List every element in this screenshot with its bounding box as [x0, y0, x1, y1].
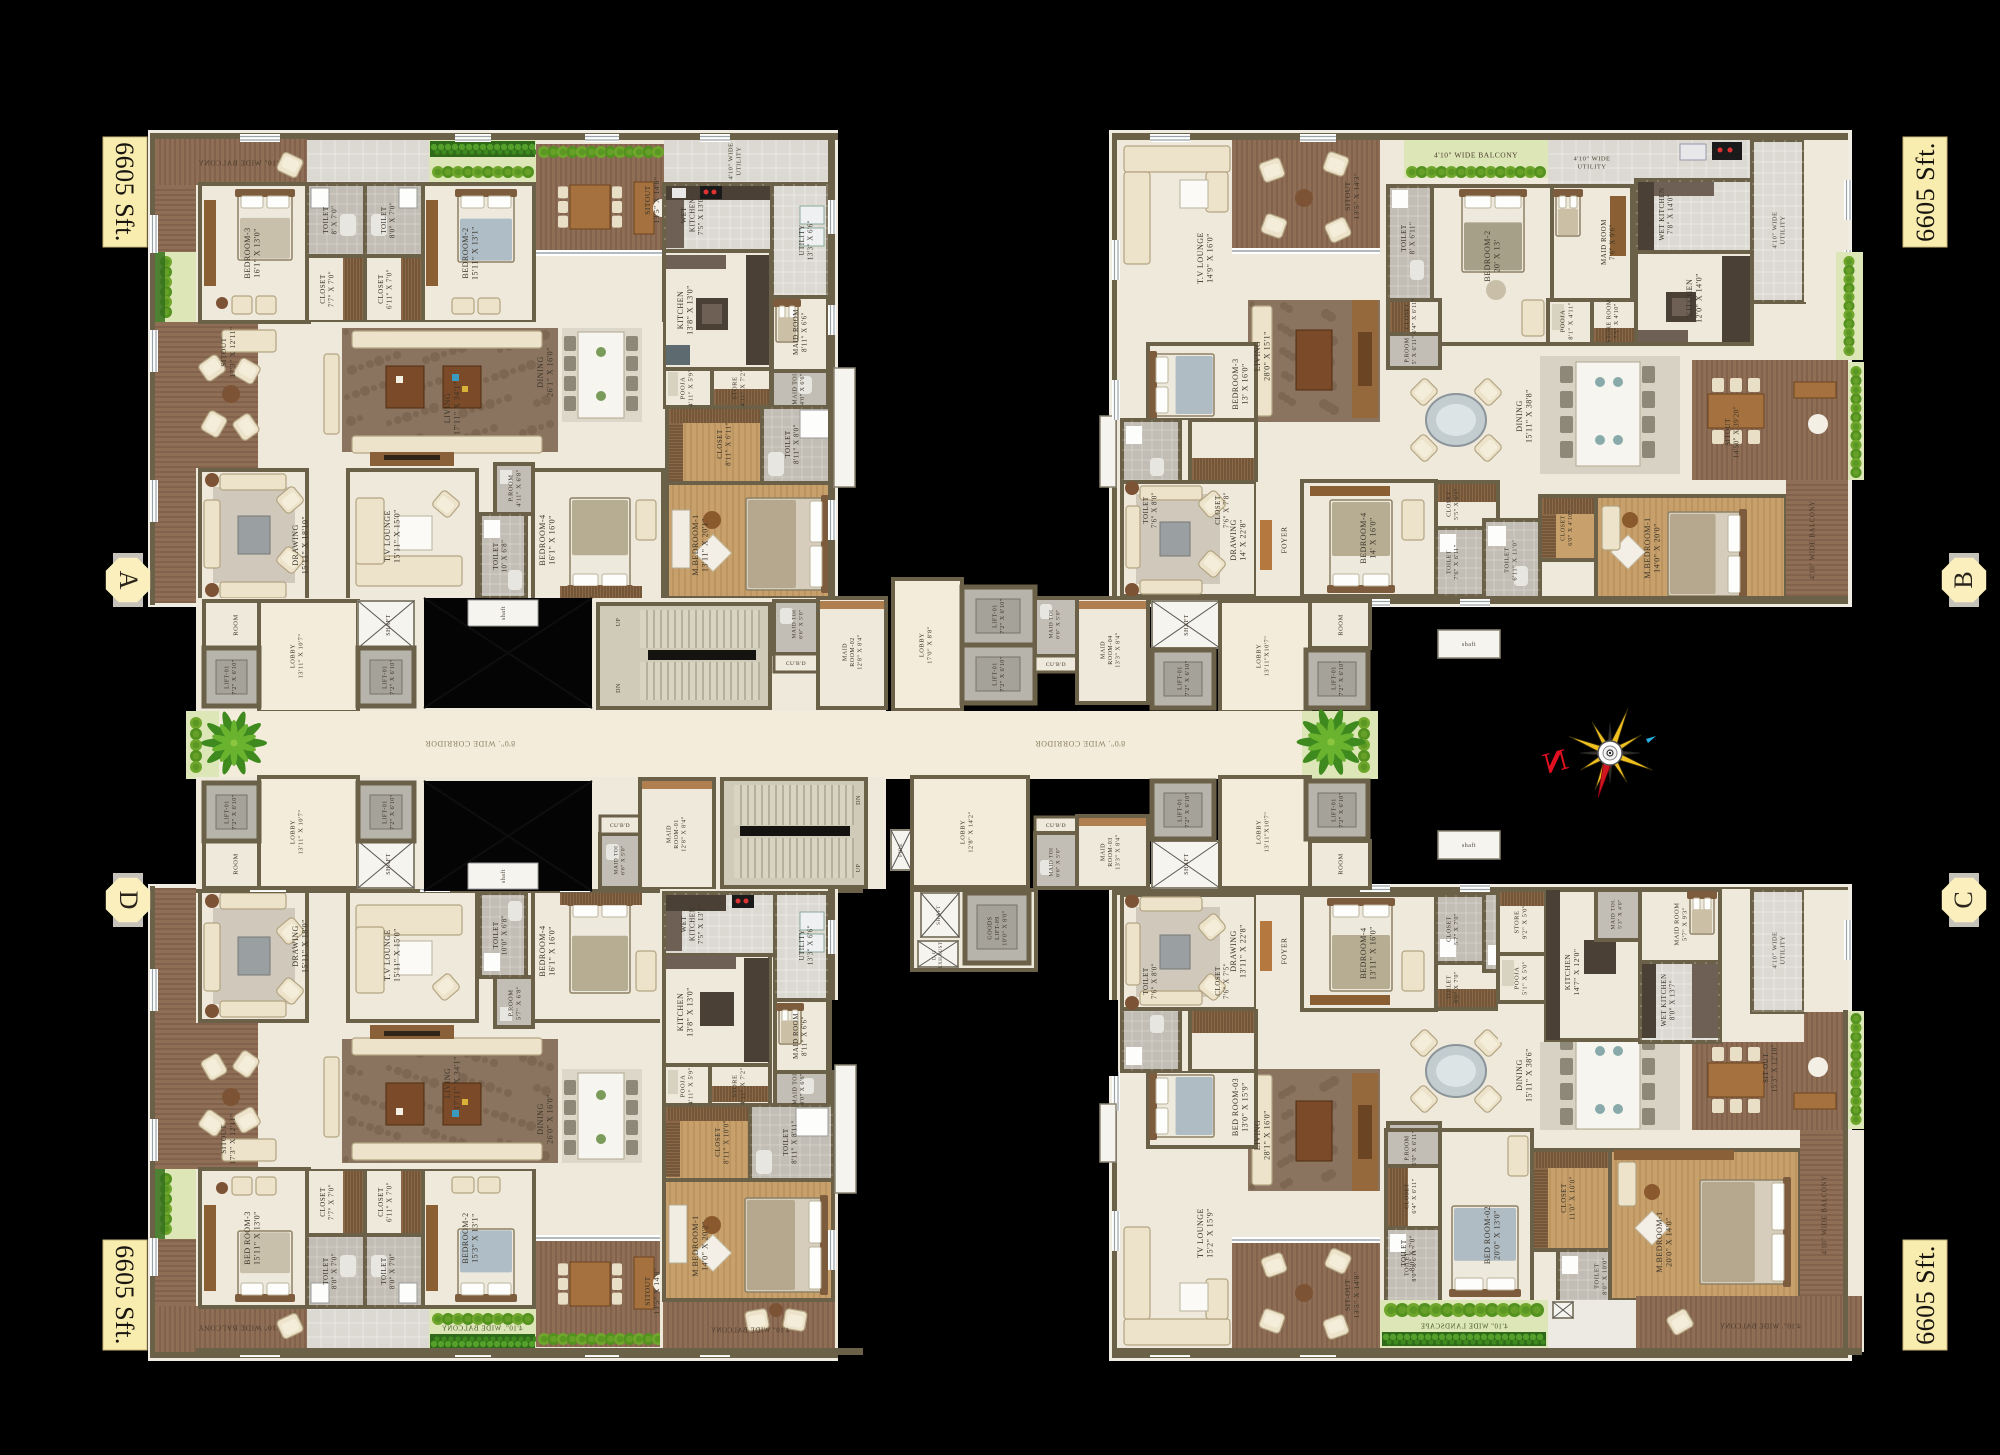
svg-text:7'2" X 6'10": 7'2" X 6'10": [232, 659, 238, 694]
svg-text:CLOSET: CLOSET: [377, 1187, 385, 1217]
svg-text:LOBBY: LOBBY: [289, 644, 296, 669]
svg-text:4'0" X 6'6": 4'0" X 6'6": [800, 1073, 806, 1105]
svg-text:CLOSET: CLOSET: [1446, 491, 1452, 517]
svg-text:LIFT-01: LIFT-01: [992, 604, 998, 628]
svg-text:TOILET: TOILET: [322, 1257, 330, 1285]
svg-text:DINING: DINING: [536, 1103, 545, 1134]
svg-text:TOILET: TOILET: [1142, 967, 1150, 995]
svg-text:MAID TOI: MAID TOI: [791, 609, 797, 638]
svg-text:8'0" X 10'0": 8'0" X 10'0": [1601, 1257, 1608, 1295]
svg-text:8' X 6'11": 8' X 6'11": [1409, 222, 1417, 255]
svg-text:STORE: STORE: [731, 377, 738, 400]
svg-text:4'0" X 6'6": 4'0" X 6'6": [800, 373, 806, 405]
svg-text:SITOUT: SITOUT: [1724, 418, 1732, 446]
svg-text:8'0" X 7'0": 8'0" X 7'0": [1454, 971, 1460, 1003]
svg-text:EXHAUST: EXHAUST: [939, 942, 944, 969]
svg-text:15'2" X 15'9": 15'2" X 15'9": [1206, 1208, 1215, 1258]
svg-text:UTILITY: UTILITY: [735, 146, 742, 175]
svg-text:8'11" X 6'6": 8'11" X 6'6": [801, 1016, 809, 1056]
svg-text:LIVING: LIVING: [1253, 341, 1262, 372]
svg-text:STORE: STORE: [731, 1075, 738, 1098]
svg-text:CLOSET: CLOSET: [319, 1187, 327, 1217]
svg-text:ROOM-02: ROOM-02: [850, 637, 856, 667]
svg-text:4'10" WIDE LANDSCAPE: 4'10" WIDE LANDSCAPE: [1420, 1322, 1508, 1330]
svg-text:7'2" X 6'10": 7'2" X 6'10": [232, 794, 238, 829]
svg-text:MAID ROOM: MAID ROOM: [1673, 903, 1680, 946]
svg-text:17'3" X 12'11": 17'3" X 12'11": [228, 327, 237, 378]
svg-text:9'2" X 5'0": 9'2" X 5'0": [1521, 905, 1528, 939]
svg-text:SITOUT: SITOUT: [1343, 181, 1352, 211]
svg-text:17'0" X 8'8": 17'0" X 8'8": [926, 626, 933, 664]
svg-text:LOBBY: LOBBY: [1255, 820, 1262, 845]
svg-text:M.BEDROOM-1: M.BEDROOM-1: [691, 514, 700, 575]
svg-text:LIFT-09: LIFT-09: [995, 916, 1001, 940]
svg-text:4'10". WIDE BALCONY: 4'10". WIDE BALCONY: [441, 1324, 522, 1332]
svg-text:LIFT-01: LIFT-01: [1177, 798, 1183, 822]
svg-text:CU'B'D: CU'B'D: [1046, 662, 1066, 668]
svg-text:ROOM: ROOM: [232, 614, 239, 636]
svg-text:13'3" X 8'4": 13'3" X 8'4": [1116, 834, 1122, 869]
svg-text:8'0" X 7'0": 8'0" X 7'0": [331, 1253, 339, 1289]
svg-text:UP: UP: [616, 618, 622, 627]
svg-text:BEDROOM-3: BEDROOM-3: [243, 227, 252, 278]
svg-text:MAID ROOM: MAID ROOM: [792, 309, 800, 355]
svg-text:6605 Sft.: 6605 Sft.: [110, 142, 139, 242]
svg-text:5'7" X 6'8": 5'7" X 6'8": [515, 986, 522, 1020]
svg-text:MAID TOI: MAID TOI: [792, 1073, 798, 1104]
svg-text:10'0" X 6'8": 10'0" X 6'8": [501, 915, 509, 955]
svg-text:7'5" X 13'0": 7'5" X 13'0": [697, 195, 705, 235]
svg-text:ROOM: ROOM: [1337, 614, 1344, 636]
svg-text:LOBBY: LOBBY: [289, 820, 296, 845]
svg-text:6'11" X 11'0": 6'11" X 11'0": [1511, 539, 1518, 580]
svg-text:A: A: [114, 571, 143, 590]
svg-text:CLOSET: CLOSET: [1214, 966, 1222, 996]
svg-text:shaft: shaft: [500, 606, 507, 620]
svg-text:8'0" X 7'0": 8'0" X 7'0": [389, 202, 397, 238]
svg-text:MAID TOI: MAID TOI: [1048, 847, 1054, 876]
svg-text:UTILITY: UTILITY: [1577, 163, 1606, 170]
svg-text:TOILET: TOILET: [492, 542, 500, 570]
svg-text:4'11" X 6'8": 4'11" X 6'8": [515, 469, 522, 507]
svg-text:4'11" X 5'9": 4'11" X 5'9": [687, 1067, 694, 1105]
svg-text:4'10" WIDE BALCONY: 4'10" WIDE BALCONY: [1820, 1175, 1828, 1254]
svg-text:STORE: STORE: [1513, 911, 1520, 934]
svg-text:7'2" X 6'10": 7'2" X 6'10": [1000, 598, 1006, 633]
svg-text:6'0" X 4'10": 6'0" X 4'10": [1568, 510, 1574, 545]
svg-text:15'11" X 15'0": 15'11" X 15'0": [393, 509, 402, 563]
svg-text:13'11" X 22'8": 13'11" X 22'8": [1239, 924, 1248, 978]
svg-text:7'2" X 6'10": 7'2" X 6'10": [1185, 792, 1191, 827]
svg-text:DRAWING: DRAWING: [1229, 519, 1238, 561]
svg-text:MAID TOI: MAID TOI: [792, 373, 798, 404]
svg-text:15'11" X 18'10": 15'11" X 18'10": [301, 516, 310, 574]
svg-text:LIVING: LIVING: [1253, 1120, 1262, 1151]
svg-text:6'6" X 5'0": 6'6" X 5'0": [1055, 609, 1061, 639]
svg-text:4'10". WIDE BALCONY: 4'10". WIDE BALCONY: [1719, 1322, 1800, 1330]
svg-text:LIFT-01: LIFT-01: [1331, 666, 1337, 690]
svg-text:8'0" X 6'11": 8'0" X 6'11": [1412, 1246, 1418, 1281]
svg-text:5'3" X 4'0": 5'3" X 4'0": [1617, 899, 1623, 929]
svg-text:TOILET: TOILET: [1142, 496, 1150, 524]
svg-text:8'0". WIDE CORRIDOR: 8'0". WIDE CORRIDOR: [1035, 739, 1125, 748]
svg-text:BED ROOM-03: BED ROOM-03: [1231, 1078, 1240, 1136]
svg-text:BEDROOM-2: BEDROOM-2: [461, 227, 470, 278]
svg-text:LIVING: LIVING: [443, 393, 452, 424]
svg-text:UTILITY: UTILITY: [798, 929, 806, 960]
svg-text:8'0" X 13'7": 8'0" X 13'7": [1669, 980, 1677, 1020]
svg-text:LIFT-01: LIFT-01: [382, 800, 388, 824]
svg-text:BED ROOM-3: BED ROOM-3: [243, 1211, 252, 1265]
svg-text:D.G: D.G: [933, 950, 938, 960]
svg-text:20'0" X 14'0": 20'0" X 14'0": [1665, 1217, 1674, 1267]
svg-text:ROOM: ROOM: [1337, 853, 1344, 875]
svg-text:DRAWING: DRAWING: [1229, 930, 1238, 972]
svg-text:TOILET: TOILET: [1446, 975, 1452, 999]
svg-text:13'11"X10'7": 13'11"X10'7": [1263, 812, 1270, 853]
svg-text:MAID ROOM: MAID ROOM: [1600, 219, 1608, 265]
svg-text:SHAFT: SHAFT: [1184, 853, 1190, 875]
svg-text:4'10" WIDE BALCONY: 4'10" WIDE BALCONY: [1434, 151, 1518, 160]
svg-text:13'3" X 6'6": 13'3" X 6'6": [807, 925, 815, 965]
svg-text:26'0" X 16'0": 26'0" X 16'0": [546, 1094, 555, 1144]
svg-text:MAID TOI.: MAID TOI.: [1610, 898, 1616, 929]
svg-text:8'1" X 4'11": 8'1" X 4'11": [1567, 302, 1574, 340]
svg-text:28'0" X 15'1": 28'0" X 15'1": [1263, 331, 1272, 381]
svg-text:13'0" X 15'9": 13'0" X 15'9": [1241, 1082, 1250, 1132]
svg-text:8'0". WIDE CORRIDOR: 8'0". WIDE CORRIDOR: [425, 739, 515, 748]
svg-text:BEDROOM-4: BEDROOM-4: [538, 514, 547, 565]
svg-text:BEDROOM-4: BEDROOM-4: [538, 925, 547, 976]
svg-text:12'8" X 8'4": 12'8" X 8'4": [858, 634, 864, 669]
svg-text:5' X 6'11": 5' X 6'11": [1412, 336, 1418, 365]
svg-text:13'5" X 14'8": 13'5" X 14'8": [1352, 1272, 1361, 1319]
svg-text:TOILET: TOILET: [322, 206, 330, 234]
svg-text:D: D: [114, 891, 143, 910]
svg-text:ROOM-04: ROOM-04: [1108, 635, 1114, 665]
svg-text:SIT OUT: SIT OUT: [1762, 1053, 1770, 1083]
svg-text:4'10" WIDE BALCONY: 4'10" WIDE BALCONY: [198, 159, 282, 168]
svg-text:LIFT-01: LIFT-01: [992, 662, 998, 686]
svg-text:FOYER: FOYER: [1280, 937, 1289, 964]
svg-text:POOJA: POOJA: [1559, 310, 1566, 333]
svg-text:13'11" X 20'1": 13'11" X 20'1": [701, 518, 710, 572]
svg-text:CU'B'D: CU'B'D: [1046, 823, 1066, 829]
svg-text:CLOSET: CLOSET: [1560, 1183, 1568, 1213]
svg-text:CLOSET: CLOSET: [1446, 916, 1452, 942]
svg-text:4'10" WIDE: 4'10" WIDE: [1771, 211, 1778, 248]
svg-text:SITOUT: SITOUT: [219, 1124, 228, 1154]
svg-text:15'11" X 13'1": 15'11" X 13'1": [471, 226, 480, 280]
svg-text:LIFT-01: LIFT-01: [224, 800, 230, 824]
svg-text:TOILET: TOILET: [1404, 1252, 1410, 1276]
svg-text:UP: UP: [856, 864, 862, 873]
svg-text:shaft: shaft: [1462, 641, 1476, 648]
svg-text:T.V LOUNGE: T.V LOUNGE: [383, 929, 392, 981]
svg-text:GOODS: GOODS: [988, 916, 994, 939]
svg-text:M.BEDROOM-1: M.BEDROOM-1: [1655, 1211, 1664, 1272]
svg-text:B: B: [1949, 571, 1978, 588]
svg-text:M.BEDROOM-1: M.BEDROOM-1: [1643, 517, 1652, 578]
svg-text:TOILET: TOILET: [1593, 1263, 1600, 1289]
svg-text:4'10" WIDE BALCONY: 4'10" WIDE BALCONY: [710, 1326, 789, 1334]
svg-text:14' X 22'8": 14' X 22'8": [1239, 519, 1248, 560]
svg-text:DINING: DINING: [1515, 1059, 1524, 1090]
svg-text:5'1" X 5'0": 5'1" X 5'0": [1521, 961, 1528, 995]
svg-text:10'0" X 8'0": 10'0" X 8'0": [1003, 910, 1009, 945]
svg-text:13'3" X 8'4": 13'3" X 8'4": [1116, 632, 1122, 667]
svg-text:13'11" X 10'7": 13'11" X 10'7": [297, 809, 304, 854]
svg-text:5'5" X 6'1": 5'5" X 6'1": [1454, 488, 1460, 520]
svg-text:17'3" X 12'11": 17'3" X 12'11": [228, 1114, 237, 1165]
svg-text:WET KITCHEN: WET KITCHEN: [1658, 188, 1666, 241]
svg-text:LIFT-01: LIFT-01: [382, 665, 388, 689]
svg-text:POOJA: POOJA: [1513, 967, 1520, 990]
svg-text:6605 Sft.: 6605 Sft.: [110, 1245, 139, 1345]
svg-text:SITOUT: SITOUT: [643, 185, 652, 215]
svg-text:5'7" X 9'3": 5'7" X 9'3": [1681, 907, 1688, 941]
svg-text:CLOSET: CLOSET: [1214, 495, 1222, 525]
svg-text:ROOM: ROOM: [232, 853, 239, 875]
svg-text:POOJA: POOJA: [679, 1075, 686, 1098]
svg-text:6'6" X 5'0": 6'6" X 5'0": [620, 845, 626, 875]
svg-text:SITOUT: SITOUT: [643, 1276, 652, 1306]
svg-text:SHAFT: SHAFT: [936, 905, 942, 925]
svg-text:TOILET: TOILET: [1400, 224, 1408, 252]
svg-text:8' X 7'0": 8' X 7'0": [331, 206, 339, 235]
svg-text:ROOM-03: ROOM-03: [1108, 837, 1114, 867]
svg-text:CLOSET: CLOSET: [1404, 303, 1410, 329]
svg-text:TOILET: TOILET: [782, 1128, 790, 1156]
svg-text:ROOM-01: ROOM-01: [674, 819, 680, 849]
svg-text:CLOSET: CLOSET: [319, 274, 327, 304]
svg-text:6'4" X 6'11": 6'4" X 6'11": [1412, 298, 1418, 333]
svg-text:KITCHEN: KITCHEN: [676, 291, 685, 330]
svg-text:STORE ROOM: STORE ROOM: [1606, 299, 1612, 343]
svg-text:FOYER: FOYER: [1280, 526, 1289, 553]
svg-text:15'3" X 12'10": 15'3" X 12'10": [1771, 1044, 1779, 1092]
svg-text:KITCHEN: KITCHEN: [676, 993, 685, 1032]
svg-text:FIRE: FIRE: [898, 843, 904, 857]
svg-text:4'11" X 5'9": 4'11" X 5'9": [687, 369, 694, 407]
svg-text:4'10" WIDE: 4'10" WIDE: [727, 142, 734, 179]
svg-text:7'2" X 6'10": 7'2" X 6'10": [1339, 792, 1345, 827]
svg-text:6'6" X 5'0": 6'6" X 5'0": [798, 609, 804, 639]
svg-text:8'11" X 6'6": 8'11" X 6'6": [801, 312, 809, 352]
svg-text:8'0" X 7'0": 8'0" X 7'0": [389, 1253, 397, 1289]
svg-text:TV LOUNGE: TV LOUNGE: [1196, 1208, 1205, 1258]
svg-text:20' X 13': 20' X 13': [1493, 239, 1502, 272]
svg-text:TOILET: TOILET: [492, 921, 500, 949]
svg-text:13'11" X 10'7": 13'11" X 10'7": [297, 633, 304, 678]
svg-text:4'10" WIDE: 4'10" WIDE: [1771, 931, 1778, 968]
svg-text:6605 Sft.: 6605 Sft.: [1911, 1245, 1940, 1345]
svg-text:BEDROOM-4: BEDROOM-4: [1359, 927, 1368, 978]
svg-text:CU'B'D: CU'B'D: [610, 823, 630, 829]
svg-text:TOILET: TOILET: [1503, 547, 1510, 573]
svg-text:BED ROOM-02: BED ROOM-02: [1483, 1206, 1492, 1264]
svg-text:13'8" X 13'0": 13'8" X 13'0": [686, 987, 695, 1037]
svg-text:UTILITY: UTILITY: [798, 224, 806, 255]
svg-text:10' X 6'8": 10' X 6'8": [501, 540, 509, 573]
svg-text:12'8" X 14'2": 12'8" X 14'2": [967, 811, 974, 853]
svg-text:shaft: shaft: [1462, 842, 1476, 849]
svg-text:14' X 16'0": 14' X 16'0": [1369, 517, 1378, 558]
svg-text:7'5" X 13'1": 7'5" X 13'1": [697, 904, 705, 944]
svg-text:15'11" X 38'8": 15'11" X 38'8": [1525, 389, 1534, 443]
svg-text:UTILITY: UTILITY: [1779, 935, 1786, 964]
svg-text:TOILET: TOILET: [380, 206, 388, 234]
svg-text:LOBBY: LOBBY: [1255, 644, 1262, 669]
svg-text:5'7" X 7'0": 5'7" X 7'0": [1454, 913, 1460, 945]
svg-text:MAID: MAID: [1101, 843, 1107, 861]
svg-text:4'11" X 7'2": 4'11" X 7'2": [739, 1067, 746, 1105]
svg-text:4'10" WIDE: 4'10" WIDE: [1573, 155, 1610, 162]
svg-text:POOJA: POOJA: [679, 377, 686, 400]
svg-text:P.ROOM: P.ROOM: [1404, 337, 1410, 362]
svg-text:DRAWING: DRAWING: [291, 925, 300, 967]
svg-text:WET: WET: [680, 206, 688, 223]
svg-text:8'11" X 8'11": 8'11" X 8'11": [791, 1120, 799, 1164]
svg-text:P.ROOM: P.ROOM: [1404, 1135, 1410, 1160]
svg-text:SHAFT: SHAFT: [386, 853, 392, 875]
svg-text:6'11" X 7'0": 6'11" X 7'0": [386, 1182, 394, 1222]
svg-text:6'4" X 6'11": 6'4" X 6'11": [1412, 1178, 1418, 1213]
svg-text:7'5" X 4'10": 7'5" X 4'10": [1614, 303, 1620, 338]
svg-text:LIFT-01: LIFT-01: [1177, 666, 1183, 690]
svg-text:7'6" X 8'0": 7'6" X 8'0": [1151, 963, 1159, 999]
svg-text:SHAFT: SHAFT: [386, 614, 392, 636]
svg-text:MAID ROOM: MAID ROOM: [792, 1013, 800, 1059]
svg-text:C: C: [1949, 891, 1978, 908]
svg-text:8'11" X 10'0": 8'11" X 10'0": [723, 1120, 731, 1164]
svg-text:7'7" X 7'0": 7'7" X 7'0": [328, 1184, 336, 1220]
svg-text:LIVING: LIVING: [443, 1068, 452, 1099]
svg-text:TOILET: TOILET: [1446, 550, 1452, 574]
svg-text:LOBBY: LOBBY: [959, 820, 966, 845]
svg-text:DINING: DINING: [536, 356, 545, 387]
svg-text:TOILET: TOILET: [784, 430, 792, 458]
svg-text:M.BEDROOM-1: M.BEDROOM-1: [691, 1215, 700, 1276]
svg-text:14'7" X 12'0": 14'7" X 12'0": [1572, 949, 1581, 996]
svg-text:15'11" X 18'0": 15'11" X 18'0": [301, 919, 310, 973]
svg-text:13'5" X 14'3": 13'5" X 14'3": [1352, 173, 1361, 220]
svg-text:20'0" X 13'0": 20'0" X 13'0": [1493, 1210, 1502, 1260]
svg-text:BEDROOM-2: BEDROOM-2: [1483, 230, 1492, 281]
svg-text:MAID TOI: MAID TOI: [613, 845, 619, 874]
svg-text:14'0" X 20'2": 14'0" X 20'2": [701, 1221, 710, 1271]
svg-text:KITCHEN: KITCHEN: [688, 907, 696, 941]
svg-text:CU'B'D: CU'B'D: [786, 661, 806, 667]
svg-text:shaft: shaft: [500, 869, 507, 883]
svg-text:6'6" X 5'0": 6'6" X 5'0": [1055, 847, 1061, 877]
svg-text:CLOSET: CLOSET: [714, 1127, 722, 1157]
svg-text:16'1" X 16'0": 16'1" X 16'0": [548, 515, 557, 565]
svg-text:KITCHEN: KITCHEN: [1685, 279, 1694, 318]
svg-text:8'11" X 6'11": 8'11" X 6'11": [725, 422, 733, 466]
svg-text:7'6" X 8'0": 7'6" X 8'0": [1151, 492, 1159, 528]
svg-text:MAID: MAID: [1101, 641, 1107, 659]
svg-text:8'11" X 8'0": 8'11" X 8'0": [793, 424, 801, 464]
svg-text:6605 Sft.: 6605 Sft.: [1911, 142, 1940, 242]
svg-text:KITCHEN: KITCHEN: [688, 198, 696, 232]
svg-text:4'10" WIDE BALCONY: 4'10" WIDE BALCONY: [1808, 500, 1816, 579]
svg-text:13'3" X 6'6": 13'3" X 6'6": [807, 220, 815, 260]
svg-text:13' X 16'0": 13' X 16'0": [1241, 363, 1250, 404]
svg-text:WET KITCHEN: WET KITCHEN: [1660, 974, 1668, 1027]
svg-text:DRAWING: DRAWING: [291, 524, 300, 566]
svg-text:CLOSET: CLOSET: [1404, 1183, 1410, 1209]
svg-text:7'2" X 6'10": 7'2" X 6'10": [1000, 656, 1006, 691]
svg-text:MAID: MAID: [843, 643, 849, 661]
svg-text:KITCHEN: KITCHEN: [1563, 954, 1572, 990]
svg-text:13'11"X10'7": 13'11"X10'7": [1263, 636, 1270, 677]
svg-text:DN: DN: [616, 683, 622, 693]
svg-text:WET: WET: [680, 915, 688, 932]
svg-text:LIFT-01: LIFT-01: [1331, 798, 1337, 822]
svg-text:12'0" X 14'0": 12'0" X 14'0": [1695, 273, 1704, 323]
svg-text:16'1" X 16'0": 16'1" X 16'0": [548, 926, 557, 976]
svg-text:4'11" X 7'2": 4'11" X 7'2": [739, 369, 746, 407]
svg-text:28'1" X 16'0": 28'1" X 16'0": [1263, 1110, 1272, 1160]
svg-text:DINING: DINING: [1515, 400, 1524, 431]
svg-text:T.V LOUNGE: T.V LOUNGE: [383, 510, 392, 562]
svg-text:7'6" X 9'6": 7'6" X 9'6": [1609, 224, 1617, 260]
svg-text:7'2" X 6'10": 7'2" X 6'10": [390, 794, 396, 829]
svg-text:7'8" X 14'0": 7'8" X 14'0": [1667, 194, 1675, 234]
svg-text:17'11" X 34'1": 17'11" X 34'1": [453, 381, 462, 435]
svg-text:7'2" X 6'10": 7'2" X 6'10": [1185, 660, 1191, 695]
svg-text:BEDROOM-4: BEDROOM-4: [1359, 512, 1368, 563]
svg-text:BEDROOM-2: BEDROOM-2: [461, 1212, 470, 1263]
svg-text:17'11" X 34'1": 17'11" X 34'1": [453, 1056, 462, 1110]
svg-text:5'0" X 6'11": 5'0" X 6'11": [1412, 1130, 1418, 1165]
svg-text:LOBBY: LOBBY: [918, 633, 925, 658]
svg-text:LIFT-01: LIFT-01: [224, 665, 230, 689]
svg-text:P.ROOM: P.ROOM: [507, 989, 514, 1016]
svg-text:7'7" X 7'0": 7'7" X 7'0": [328, 271, 336, 307]
svg-text:14'0" X 20'0": 14'0" X 20'0": [1653, 523, 1662, 573]
svg-text:T.V LOUNGE: T.V LOUNGE: [1196, 232, 1205, 284]
svg-text:11'0" X 10'0": 11'0" X 10'0": [1569, 1176, 1577, 1220]
svg-text:UTILITY: UTILITY: [1779, 215, 1786, 244]
svg-text:26'1" X 16'0": 26'1" X 16'0": [546, 347, 555, 397]
svg-text:12'8" X 8'4": 12'8" X 8'4": [682, 816, 688, 851]
svg-text:SITOUT: SITOUT: [219, 337, 228, 367]
svg-text:CLOSET: CLOSET: [1560, 515, 1566, 541]
svg-text:6'11" X 7'0": 6'11" X 7'0": [386, 269, 394, 309]
svg-text:MAID: MAID: [667, 825, 673, 843]
svg-text:CLOSET: CLOSET: [716, 429, 724, 459]
svg-text:SHAFT: SHAFT: [1184, 614, 1190, 636]
svg-text:15'11" X 15'0": 15'11" X 15'0": [393, 928, 402, 982]
svg-text:7'2" X 6'10": 7'2" X 6'10": [390, 659, 396, 694]
svg-text:DN: DN: [856, 795, 862, 805]
svg-text:TOILET: TOILET: [380, 1257, 388, 1285]
svg-text:CLOSET: CLOSET: [377, 274, 385, 304]
svg-text:7'6" X 6'11": 7'6" X 6'11": [1454, 544, 1460, 579]
svg-text:MAID TOI: MAID TOI: [1048, 609, 1054, 638]
svg-text:14'9" X 16'0": 14'9" X 16'0": [1206, 233, 1215, 283]
svg-text:15'11" X 13'0": 15'11" X 13'0": [253, 1211, 262, 1265]
svg-text:BEDROOM-3: BEDROOM-3: [1231, 358, 1240, 409]
svg-text:SIT-OUT: SIT-OUT: [1343, 1279, 1352, 1311]
svg-text:16'1" X 13'0": 16'1" X 13'0": [253, 228, 262, 278]
svg-text:13'5" X 14'8": 13'5" X 14'8": [652, 177, 661, 224]
svg-text:15'3" X 13'1": 15'3" X 13'1": [471, 1213, 480, 1263]
svg-text:P.ROOM: P.ROOM: [507, 474, 514, 501]
svg-text:15'11" X 38'6": 15'11" X 38'6": [1525, 1048, 1534, 1102]
